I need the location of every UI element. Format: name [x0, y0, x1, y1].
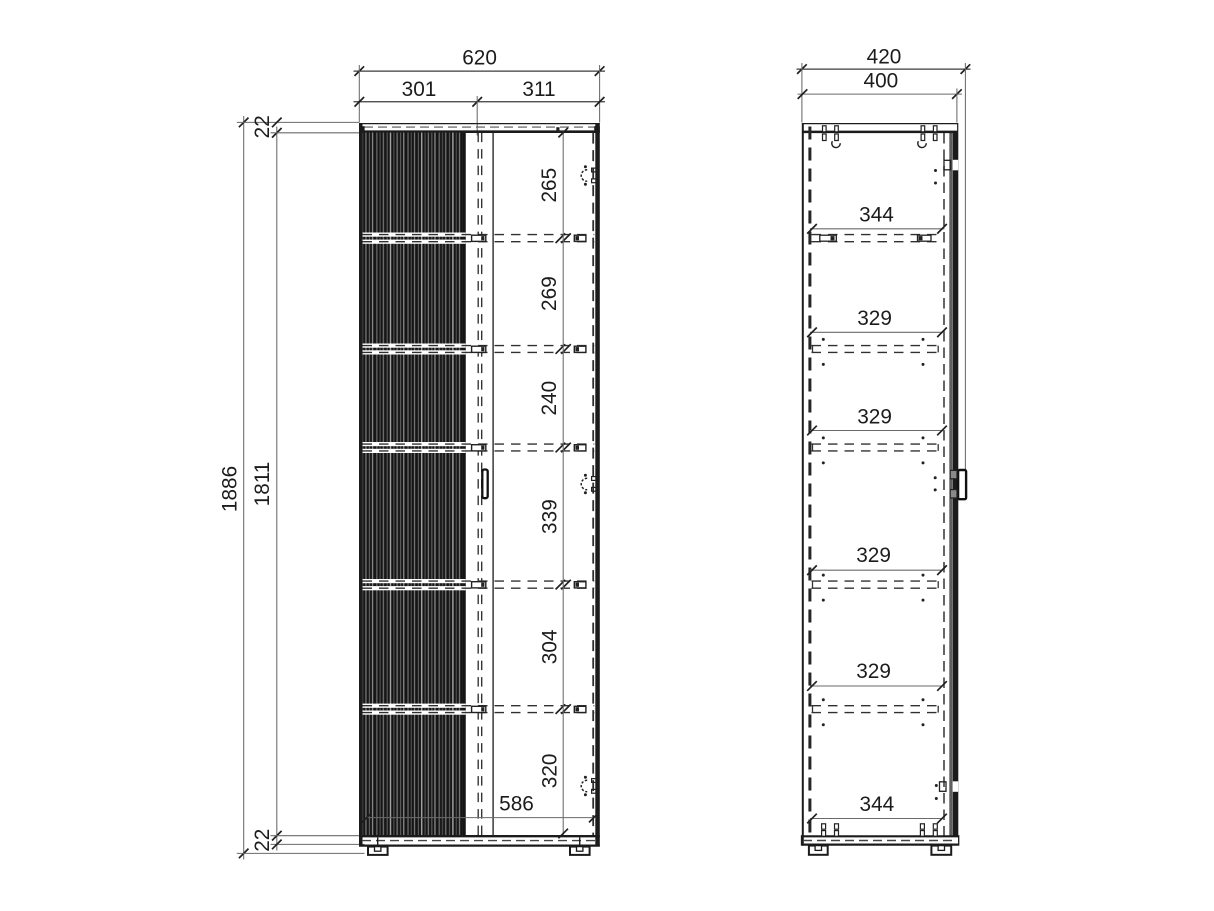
svg-text:1811: 1811	[251, 462, 274, 507]
svg-text:22: 22	[251, 115, 274, 138]
svg-text:265: 265	[538, 168, 561, 203]
svg-text:1886: 1886	[219, 466, 242, 512]
svg-text:586: 586	[499, 793, 534, 816]
svg-text:420: 420	[867, 46, 902, 69]
svg-text:339: 339	[539, 499, 562, 534]
svg-text:304: 304	[539, 630, 562, 665]
svg-text:240: 240	[538, 381, 561, 416]
svg-text:301: 301	[402, 78, 437, 101]
svg-text:620: 620	[462, 46, 497, 69]
svg-text:22: 22	[251, 829, 274, 852]
svg-text:344: 344	[859, 204, 894, 227]
svg-text:311: 311	[522, 78, 555, 101]
svg-text:329: 329	[857, 307, 892, 330]
svg-text:329: 329	[856, 660, 891, 683]
svg-text:329: 329	[857, 405, 892, 428]
svg-text:329: 329	[856, 544, 891, 567]
svg-text:400: 400	[864, 70, 899, 93]
svg-text:269: 269	[538, 276, 561, 311]
svg-text:320: 320	[539, 754, 562, 789]
svg-text:344: 344	[860, 793, 895, 816]
